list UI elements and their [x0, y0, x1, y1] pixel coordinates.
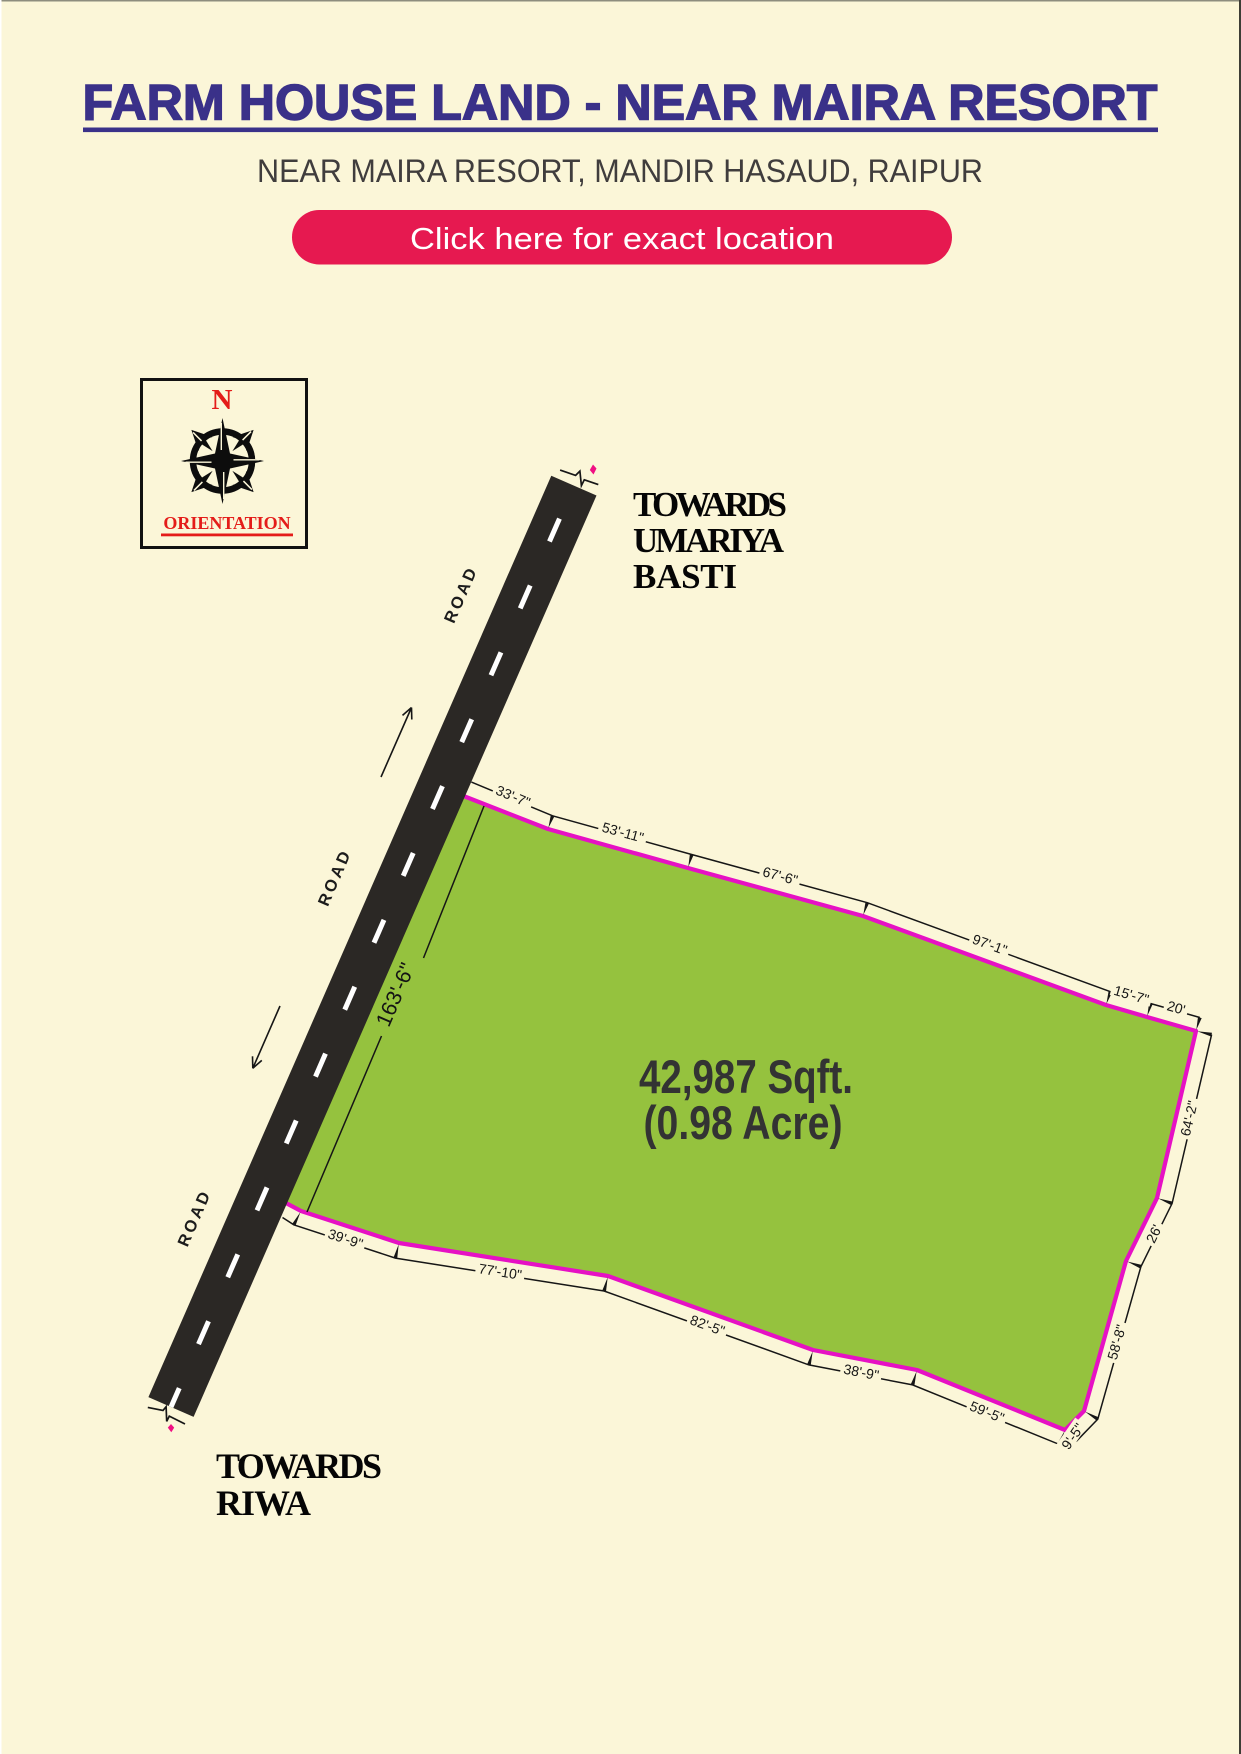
- svg-text:ORIENTATION: ORIENTATION: [163, 513, 290, 533]
- svg-text:Click here for exact location: Click here for exact location: [410, 221, 834, 256]
- svg-text:BASTI: BASTI: [633, 557, 737, 596]
- svg-text:(0.98 Acre): (0.98 Acre): [644, 1096, 843, 1149]
- svg-text:N: N: [212, 384, 233, 416]
- svg-text:UMARIYA: UMARIYA: [633, 521, 785, 560]
- svg-text:TOWARDS: TOWARDS: [216, 1446, 382, 1486]
- svg-text:RIWA: RIWA: [216, 1483, 311, 1523]
- svg-text:TOWARDS: TOWARDS: [633, 485, 787, 524]
- svg-text:NEAR MAIRA RESORT, MANDIR HASA: NEAR MAIRA RESORT, MANDIR HASAUD, RAIPUR: [257, 153, 983, 189]
- svg-text:FARM HOUSE LAND - NEAR MAIRA R: FARM HOUSE LAND - NEAR MAIRA RESORT: [83, 75, 1158, 131]
